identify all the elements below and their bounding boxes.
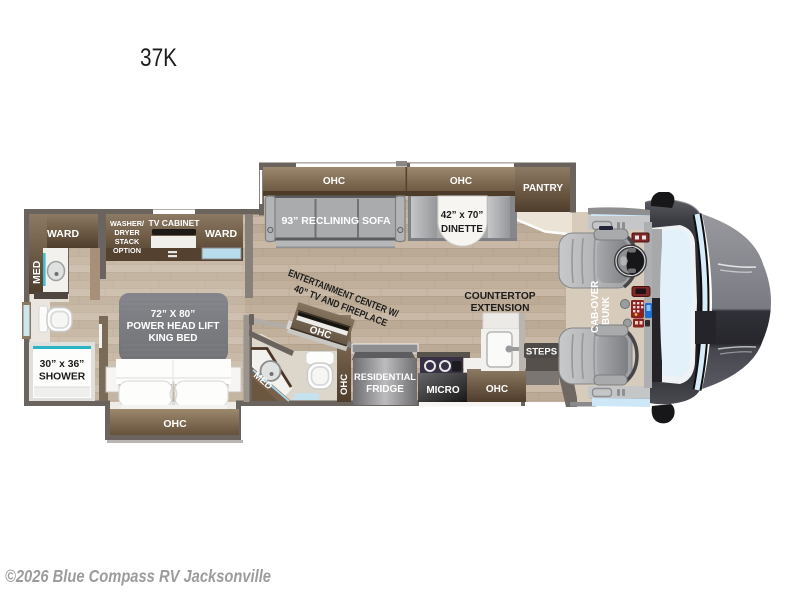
svg-text:MED: MED xyxy=(31,260,43,284)
svg-text:KING BED: KING BED xyxy=(149,333,198,344)
svg-text:OHC: OHC xyxy=(323,176,345,187)
svg-text:OHC: OHC xyxy=(450,176,472,187)
svg-text:WASHER/: WASHER/ xyxy=(110,219,144,228)
svg-text:DRYER: DRYER xyxy=(114,228,140,237)
svg-text:OHC: OHC xyxy=(163,418,187,430)
svg-text:42” x 70”: 42” x 70” xyxy=(441,210,484,221)
svg-text:93” RECLINING SOFA: 93” RECLINING SOFA xyxy=(281,215,391,227)
svg-text:DINETTE: DINETTE xyxy=(441,224,483,235)
svg-text:OHC: OHC xyxy=(486,384,508,395)
svg-text:FRIDGE: FRIDGE xyxy=(366,384,404,395)
svg-text:OHC: OHC xyxy=(339,374,350,395)
svg-text:COUNTERTOP: COUNTERTOP xyxy=(464,291,535,302)
svg-text:MICRO: MICRO xyxy=(426,385,460,396)
svg-text:PANTRY: PANTRY xyxy=(523,183,563,194)
svg-text:RESIDENTIAL: RESIDENTIAL xyxy=(354,372,416,382)
svg-text:WARD: WARD xyxy=(47,228,79,240)
svg-text:SHOWER: SHOWER xyxy=(39,372,86,383)
svg-text:TV CABINET: TV CABINET xyxy=(149,218,201,228)
svg-text:EXTENSION: EXTENSION xyxy=(471,303,530,314)
svg-text:OPTION: OPTION xyxy=(113,246,141,255)
svg-text:©2026 Blue Compass RV Jacksonv: ©2026 Blue Compass RV Jacksonville xyxy=(5,566,271,586)
svg-text:WARD: WARD xyxy=(205,228,237,240)
svg-text:72” X 80”: 72” X 80” xyxy=(151,309,195,320)
svg-text:37K: 37K xyxy=(140,44,177,72)
svg-text:CAB-OVER: CAB-OVER xyxy=(590,281,601,333)
svg-text:STEPS: STEPS xyxy=(526,347,557,358)
svg-text:POWER HEAD LIFT: POWER HEAD LIFT xyxy=(127,321,220,332)
svg-text:30” x 36”: 30” x 36” xyxy=(40,359,85,370)
svg-text:STACK: STACK xyxy=(115,237,140,246)
svg-text:BUNK: BUNK xyxy=(601,297,612,325)
